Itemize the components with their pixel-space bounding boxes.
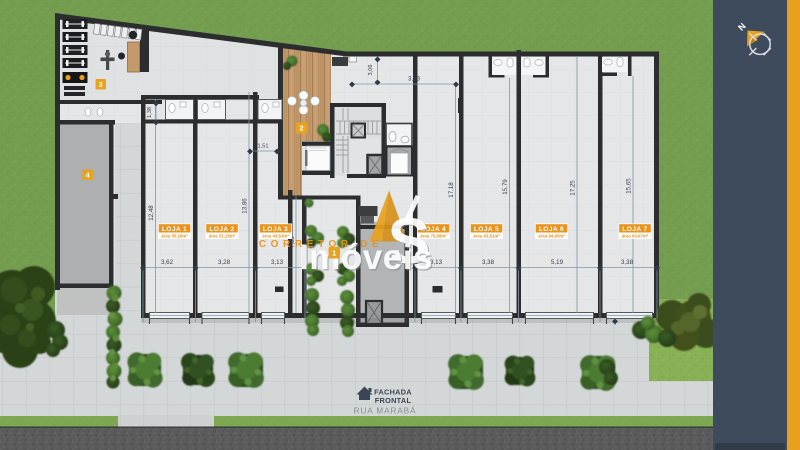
svg-text:3: 3 bbox=[99, 82, 103, 89]
svg-text:área 43,63m²: área 43,63m² bbox=[262, 233, 289, 238]
svg-text:3,06: 3,06 bbox=[368, 65, 374, 76]
svg-text:13,86: 13,86 bbox=[242, 198, 249, 214]
svg-text:área 55,16m²: área 55,16m² bbox=[161, 233, 188, 238]
svg-text:15,65: 15,65 bbox=[626, 178, 633, 194]
svg-text:área 94,95m²: área 94,95m² bbox=[538, 233, 565, 238]
svg-text:área 63,67m²: área 63,67m² bbox=[622, 233, 649, 238]
svg-text:LOJA 6: LOJA 6 bbox=[539, 226, 564, 233]
svg-text:1,51: 1,51 bbox=[258, 144, 269, 150]
svg-text:FRONTAL: FRONTAL bbox=[375, 396, 412, 405]
svg-text:15,79: 15,79 bbox=[502, 179, 509, 195]
svg-text:17,25: 17,25 bbox=[570, 180, 577, 196]
svg-text:Imóveis: Imóveis bbox=[299, 238, 433, 277]
svg-text:LOJA 5: LOJA 5 bbox=[474, 226, 499, 233]
svg-text:3,13: 3,13 bbox=[271, 259, 284, 266]
svg-text:1,38: 1,38 bbox=[147, 107, 153, 118]
svg-text:3,28: 3,28 bbox=[218, 259, 231, 266]
svg-text:3,13: 3,13 bbox=[408, 76, 421, 83]
svg-text:12,48: 12,48 bbox=[148, 205, 155, 221]
svg-text:1: 1 bbox=[332, 249, 336, 258]
svg-text:4: 4 bbox=[86, 173, 90, 180]
svg-text:3,38: 3,38 bbox=[482, 259, 495, 266]
svg-text:LOJA 1: LOJA 1 bbox=[162, 226, 187, 233]
svg-text:área 63,51m²: área 63,51m² bbox=[473, 233, 500, 238]
svg-text:17,18: 17,18 bbox=[448, 182, 455, 198]
svg-text:LOJA 7: LOJA 7 bbox=[622, 226, 647, 233]
svg-text:3,38: 3,38 bbox=[621, 259, 634, 266]
svg-text:RUA MARABÁ: RUA MARABÁ bbox=[354, 406, 417, 416]
svg-text:3,62: 3,62 bbox=[161, 259, 174, 266]
svg-text:2: 2 bbox=[299, 124, 303, 133]
svg-text:LOJA 2: LOJA 2 bbox=[209, 226, 234, 233]
svg-text:5,19: 5,19 bbox=[551, 259, 564, 266]
svg-text:área 51,25m²: área 51,25m² bbox=[209, 233, 236, 238]
svg-text:LOJA 3: LOJA 3 bbox=[263, 226, 288, 233]
